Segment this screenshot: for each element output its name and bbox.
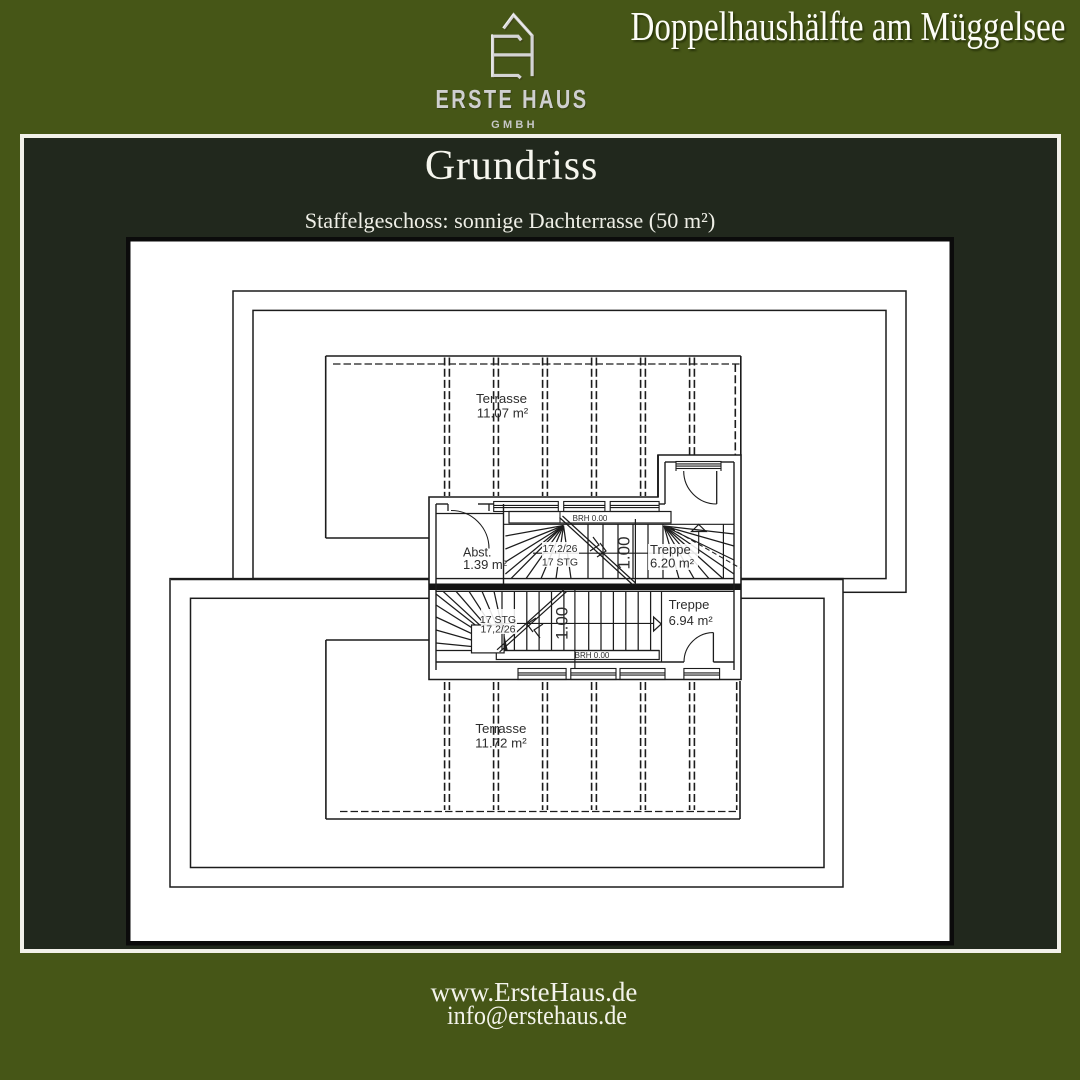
svg-text:Treppe: Treppe	[669, 597, 710, 612]
svg-text:Terrasse: Terrasse	[475, 721, 526, 736]
svg-text:11.07 m²: 11.07 m²	[477, 406, 529, 421]
svg-text:1.00: 1.00	[553, 607, 572, 640]
svg-text:17,2/26: 17,2/26	[480, 624, 515, 636]
svg-text:1.00: 1.00	[615, 536, 634, 569]
svg-text:BRH 0.00: BRH 0.00	[573, 514, 608, 523]
svg-text:17,2/26: 17,2/26	[542, 543, 577, 555]
svg-text:Terrasse: Terrasse	[476, 391, 527, 406]
svg-text:6.20 m²: 6.20 m²	[650, 556, 695, 571]
svg-text:BRH 0.00: BRH 0.00	[575, 651, 610, 660]
svg-text:17 STG: 17 STG	[542, 557, 578, 569]
svg-text:1.39 m²: 1.39 m²	[463, 557, 508, 572]
svg-text:11.72 m²: 11.72 m²	[475, 735, 527, 750]
svg-text:6.94 m²: 6.94 m²	[669, 613, 714, 628]
